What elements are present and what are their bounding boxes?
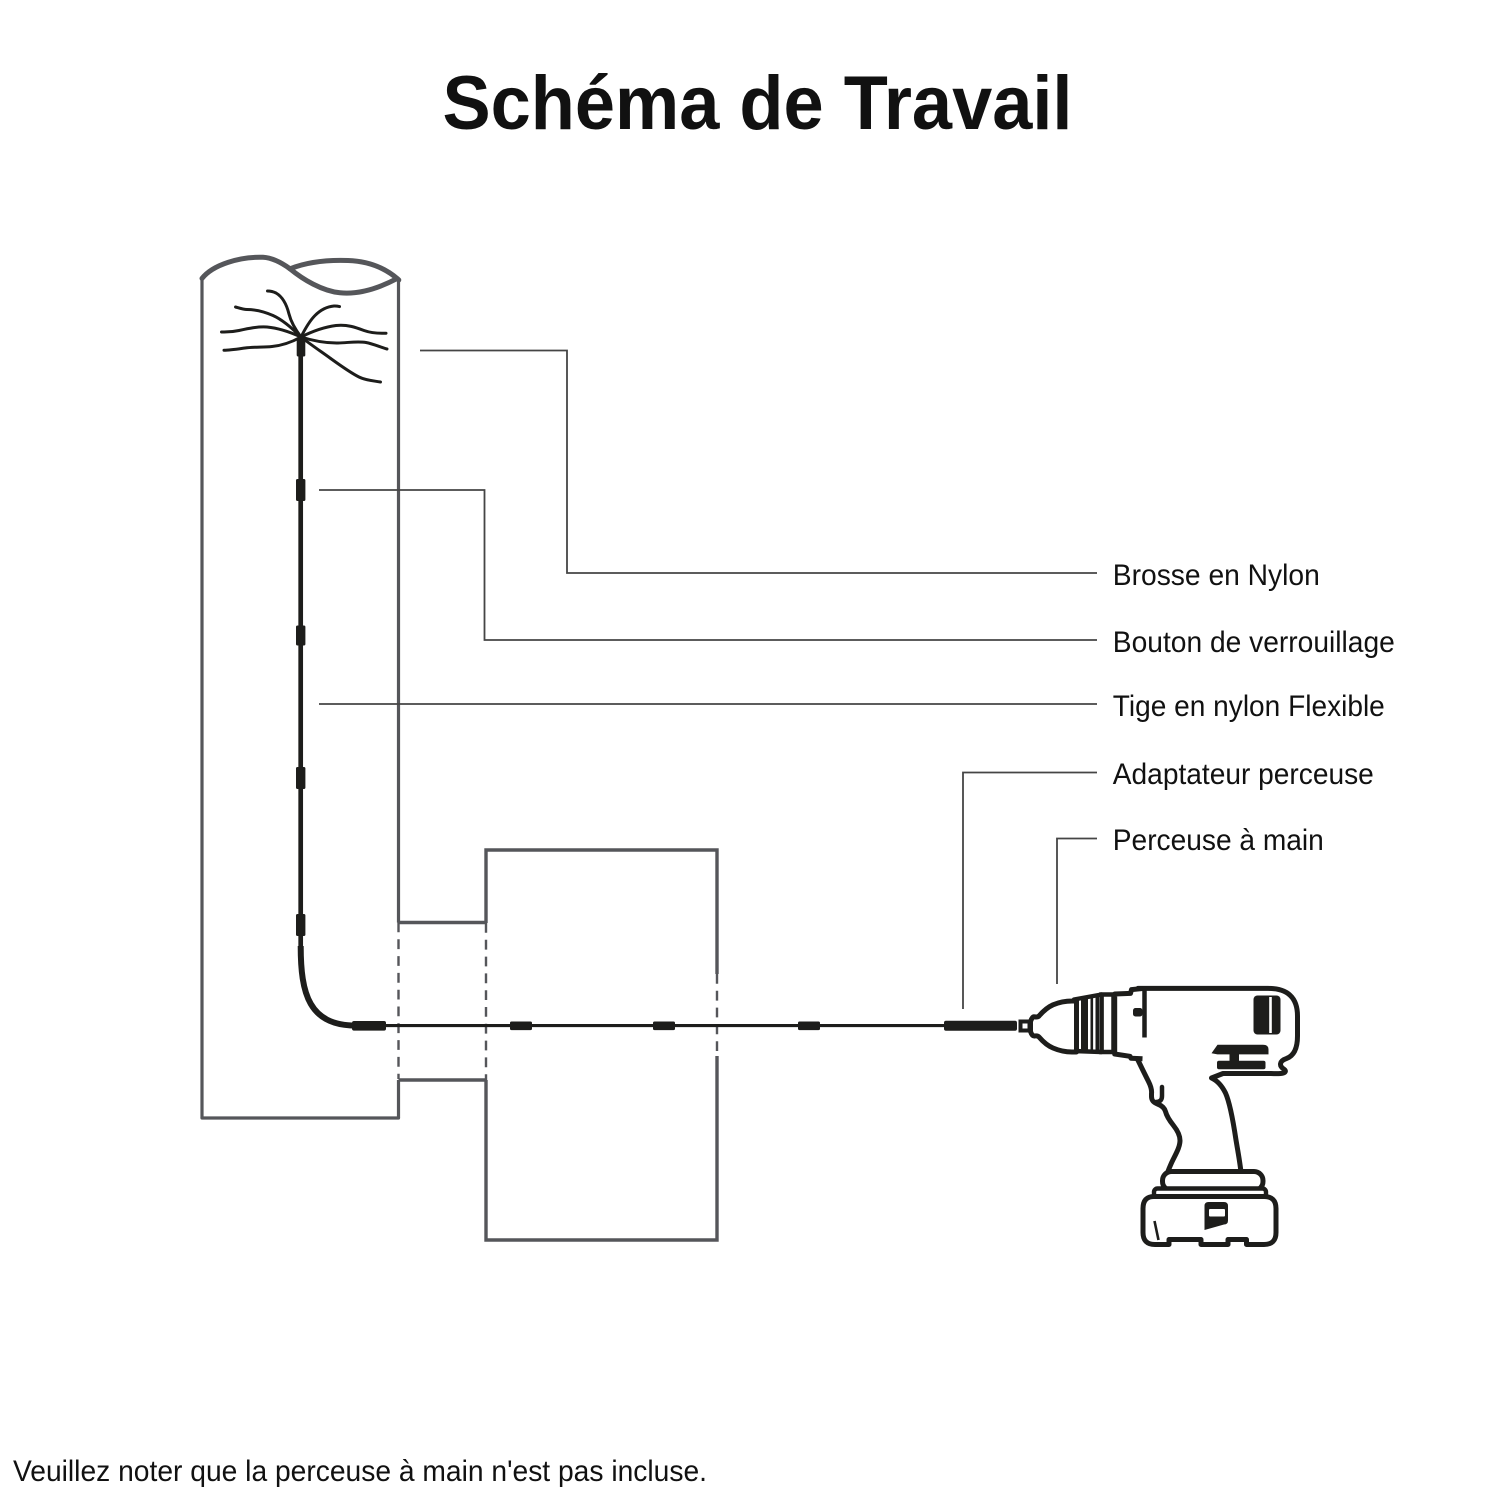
- svg-text:Adaptateur perceuse: Adaptateur perceuse: [1113, 758, 1374, 791]
- svg-text:Schéma de Travail: Schéma de Travail: [443, 61, 1073, 146]
- svg-text:Brosse en Nylon: Brosse en Nylon: [1113, 559, 1320, 592]
- svg-text:Bouton de verrouillage: Bouton de verrouillage: [1113, 626, 1395, 659]
- svg-text:Veuillez noter que la perceuse: Veuillez noter que la perceuse à main n'…: [13, 1455, 707, 1488]
- svg-text:Tige en nylon Flexible: Tige en nylon Flexible: [1113, 690, 1385, 723]
- svg-text:Perceuse à main: Perceuse à main: [1113, 824, 1324, 857]
